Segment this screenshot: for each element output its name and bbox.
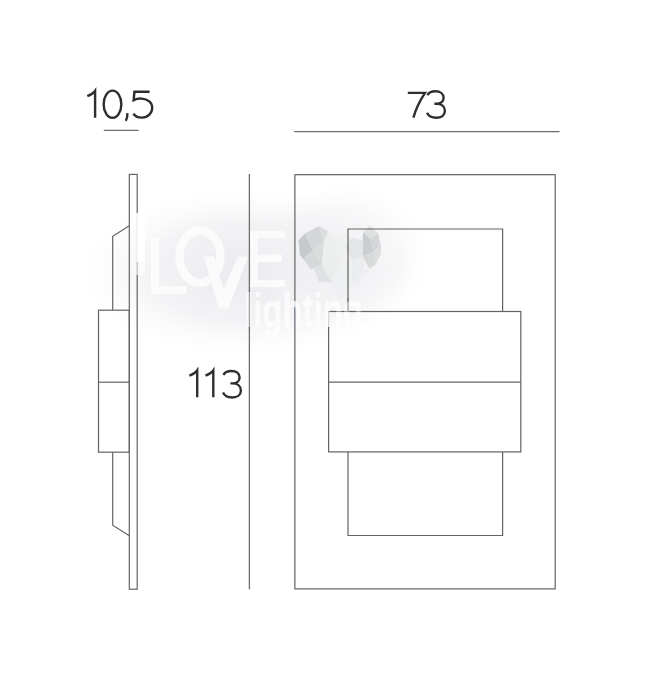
svg-text:lighting: lighting: [244, 284, 363, 337]
